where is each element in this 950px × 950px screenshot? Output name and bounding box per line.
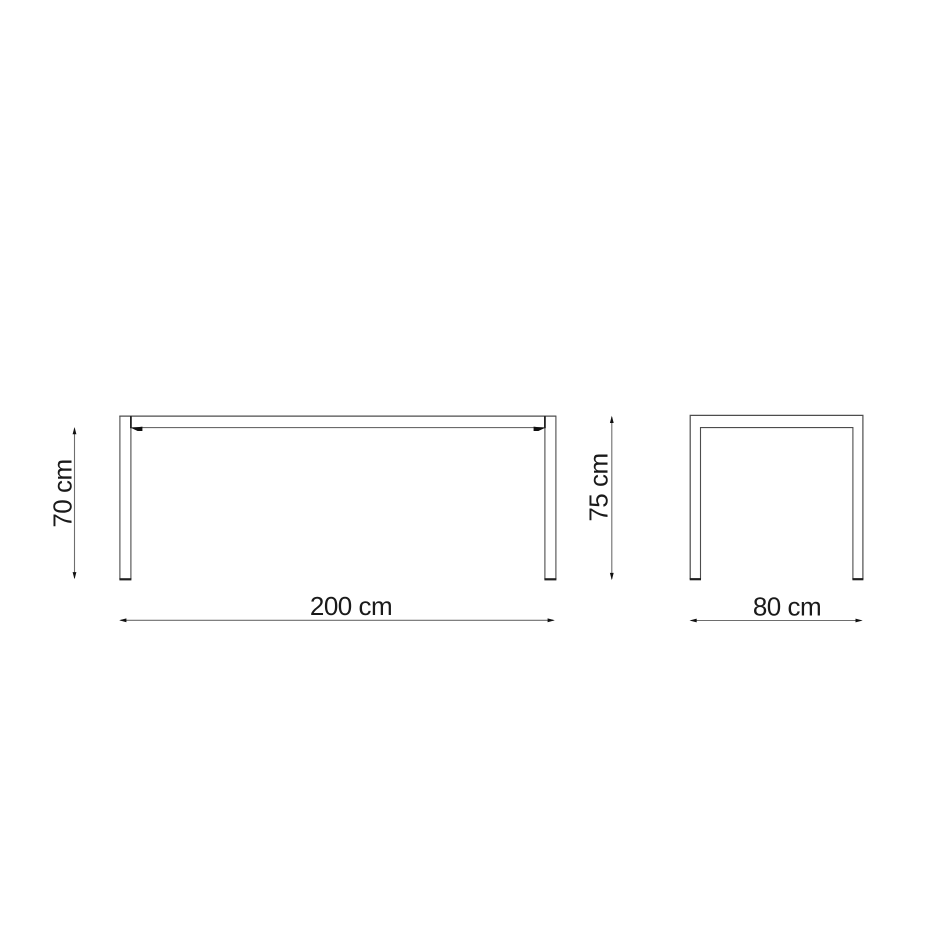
svg-text:70 cm: 70 cm bbox=[47, 459, 77, 527]
svg-text:200 cm: 200 cm bbox=[310, 591, 392, 621]
svg-text:80 cm: 80 cm bbox=[753, 591, 821, 621]
svg-text:75 cm: 75 cm bbox=[584, 453, 614, 521]
